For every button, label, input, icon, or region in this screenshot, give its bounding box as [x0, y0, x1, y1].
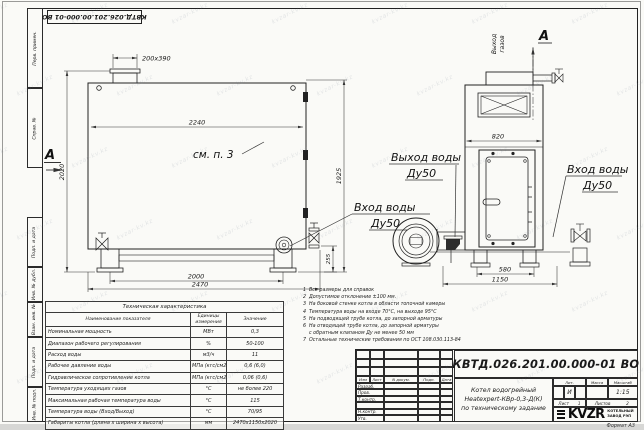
- col-izm: Изм: [356, 376, 370, 383]
- hinge-tab: [303, 208, 308, 218]
- product-line-2: Heatexpert-КВр-0,3-Д(К): [464, 395, 542, 404]
- dim-height-right: 1925: [335, 168, 343, 185]
- tech-characteristics-table: Техническая характеристика Наименование …: [45, 301, 284, 430]
- change-table: [356, 350, 454, 376]
- air-valve-icon: [555, 74, 563, 82]
- furnace-door: [479, 150, 535, 247]
- lifting-lug-icon: [97, 86, 102, 91]
- lit-mass-scale-header: Лит. Масса Масштаб: [553, 378, 638, 386]
- side-valve-icon: [309, 233, 319, 243]
- col-date: Дата: [440, 376, 453, 383]
- company-line-2: ЗАВОД РЭП: [607, 414, 633, 419]
- sig-utv: Утв.: [356, 415, 384, 421]
- logo-bars-icon: [557, 408, 565, 420]
- section-label-left: А: [44, 148, 55, 163]
- col-list: Лист: [370, 376, 384, 383]
- tech-col-value: Значение: [227, 313, 284, 327]
- side-view-dimensions: [44, 54, 430, 292]
- scale-header: Масштаб: [608, 378, 638, 386]
- doc-number-stamp-text: КВТД.026.201.00.000-01 ВО: [42, 13, 147, 21]
- sheets-value: 2: [626, 401, 629, 406]
- dim-top-width: 2240: [189, 119, 206, 127]
- mass-value: [586, 386, 608, 399]
- inlet-water-dn-side: Ду50: [370, 217, 400, 230]
- drain-valve-icon: [96, 238, 108, 250]
- outlet-water-label: Выход воды: [391, 151, 461, 164]
- gas-exit-label-1: Выход: [491, 34, 498, 54]
- outlet-water-dn: Ду50: [406, 167, 436, 180]
- table-row: Номинальная мощностьМВт0,3: [46, 327, 284, 338]
- table-row: Рабочее давление водыМПа (кгс/см2)0,6 (6…: [46, 361, 284, 372]
- dim-front-base-inner: 580: [499, 266, 511, 274]
- dim-chimney: 200x390: [142, 55, 171, 63]
- section-label-right: А: [538, 29, 549, 44]
- product-name: Котел водогрейный Heatexpert-КВр-0,3-Д(К…: [454, 378, 553, 422]
- doc-number-stamp: КВТД.026.201.00.000-01 ВО: [47, 10, 142, 24]
- table-row: Температура воды (Вход/Выход)°С70/95: [46, 406, 284, 417]
- note-item: 3На боковой стенке котла в области топоч…: [299, 301, 489, 308]
- inlet-water-label-front: Вход воды: [567, 163, 629, 176]
- support-leg: [274, 249, 292, 268]
- dim-height-left: 2020: [58, 164, 66, 181]
- dim-nozzle-height: 255: [326, 253, 332, 264]
- drawing-sheet: Перв. примен. Справ. № Подп. и дата Инв.…: [0, 0, 644, 430]
- dim-base-outer: 2470: [192, 281, 209, 289]
- sheet-value: 1: [578, 401, 581, 406]
- table-row: Расход водым3/ч11: [46, 349, 284, 360]
- inlet-valve-icon: [574, 231, 586, 241]
- col-doc: N докум.: [384, 376, 418, 383]
- hinge-tab: [303, 92, 308, 102]
- dim-front-width: 820: [492, 133, 504, 141]
- chimney-stub: [113, 73, 137, 83]
- gas-collector: [486, 72, 533, 85]
- change-table-header: Изм Лист N докум. Подп. Дата: [356, 376, 454, 383]
- note-item: с обратным клапаном Ду не менее 50 мм: [299, 330, 489, 337]
- table-row: Габариты котла (длина х ширина х высота)…: [46, 418, 284, 429]
- dim-front-base-outer: 1150: [492, 276, 509, 284]
- mass-header: Масса: [586, 378, 608, 386]
- note-item: 6На отводящей трубе котла, до запорной а…: [299, 323, 489, 330]
- product-line-1: Котел водогрейный: [471, 386, 536, 395]
- tech-table-title: Техническая характеристика: [46, 302, 284, 313]
- boiler-side-view: [88, 69, 319, 272]
- signature-rows: Разраб. Пров. Т.контр. Н.контр. Утв.: [356, 383, 454, 422]
- format-note: Формат А3: [480, 423, 635, 429]
- product-line-3: по техническому задание: [461, 404, 546, 413]
- blower-fan-icon: [393, 218, 439, 264]
- col-sign: Подп.: [418, 376, 440, 383]
- sheet-label: Лист: [558, 401, 569, 406]
- note-item: 5На подводящей трубе котла, до запорной …: [299, 316, 489, 323]
- note-item: 4Температура воды на входе 70°С, на выхо…: [299, 309, 489, 316]
- table-row: Максимальная рабочая температура воды°С1…: [46, 395, 284, 406]
- lit-header: Лит.: [553, 378, 586, 386]
- note-item: 7Остальные технические требования по ОСТ…: [299, 337, 489, 344]
- dim-base-inner: 2000: [188, 273, 205, 281]
- table-row: Температура уходящих газов°Сне более 220: [46, 383, 284, 394]
- hinge-tab: [303, 150, 308, 160]
- company-logo: KVZR КОТЕЛЬНЫЙ ЗАВОД РЭП: [553, 407, 638, 422]
- outlet-elbow-icon: [446, 239, 460, 250]
- lifting-lug-icon: [291, 86, 296, 91]
- inlet-water-dn-front: Ду50: [582, 179, 612, 192]
- tech-col-units: Единицы измерения: [191, 313, 227, 327]
- notes-list: 1Все размеры для справок 2Допустимое отк…: [299, 287, 489, 345]
- support-leg: [101, 249, 119, 268]
- lit-mass-scale-values: И 1:15: [553, 386, 638, 399]
- tech-col-name: Наименование показателя: [46, 313, 191, 327]
- doc-number: КВТД.026.201.00.000-01 ВО: [454, 350, 638, 378]
- logo-text: KVZR: [568, 407, 604, 422]
- inlet-flange-icon: [276, 237, 292, 253]
- table-row: Диапазон рабочего регулирования%50-100: [46, 338, 284, 349]
- inlet-water-label-side: Вход воды: [354, 201, 416, 214]
- scale-value: 1:15: [608, 386, 638, 399]
- gas-exit-label-2: газов: [499, 35, 506, 53]
- table-row: Гидравлическое сопротивление котлаМПа (к…: [46, 372, 284, 383]
- sheets-label: Листов: [595, 401, 611, 406]
- sheet-row: Лист 1 Листов 2: [553, 399, 638, 407]
- note-item: 1Все размеры для справок: [299, 287, 489, 294]
- lit-value: И: [564, 386, 575, 399]
- title-block: Изм Лист N докум. Подп. Дата Разраб. Про…: [355, 349, 638, 422]
- see-note-label: см. п. 3: [193, 149, 234, 161]
- door-handle: [483, 199, 500, 205]
- note-item: 2Допустимое отклонение ±100 мм.: [299, 294, 489, 301]
